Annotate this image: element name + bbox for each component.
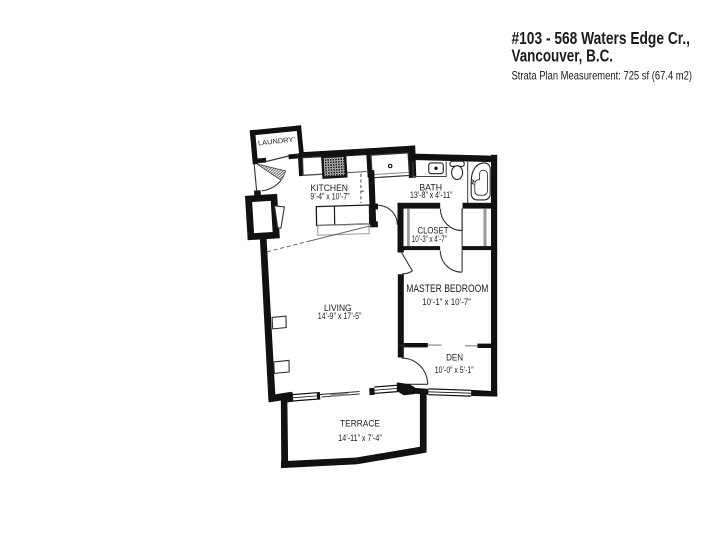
- svg-text:13’-8” x 4’-11”: 13’-8” x 4’-11”: [410, 190, 453, 200]
- svg-text:LAUNDRY’: LAUNDRY’: [258, 136, 296, 147]
- svg-text:14’-11” x 7’-4”: 14’-11” x 7’-4”: [338, 433, 381, 443]
- svg-text:TERRACE: TERRACE: [340, 419, 380, 430]
- svg-text:Strata Plan Measurement: 725 s: Strata Plan Measurement: 725 sf (67.4 m2…: [512, 69, 693, 83]
- svg-text:10’-0” x 5’-1”: 10’-0” x 5’-1”: [435, 365, 474, 375]
- svg-text:MASTER BEDROOM: MASTER BEDROOM: [406, 283, 488, 295]
- svg-text:9’-4” x 10’-7”: 9’-4” x 10’-7”: [310, 192, 349, 202]
- svg-text:10’-1” x 10’-7”: 10’-1” x 10’-7”: [422, 297, 471, 307]
- svg-text:10’-3” x 4’-7”: 10’-3” x 4’-7”: [412, 234, 447, 244]
- svg-text:14’-9” x 17’-5”: 14’-9” x 17’-5”: [318, 311, 362, 321]
- svg-text:Vancouver, B.C.: Vancouver, B.C.: [512, 46, 614, 66]
- svg-text:DEN: DEN: [446, 353, 463, 364]
